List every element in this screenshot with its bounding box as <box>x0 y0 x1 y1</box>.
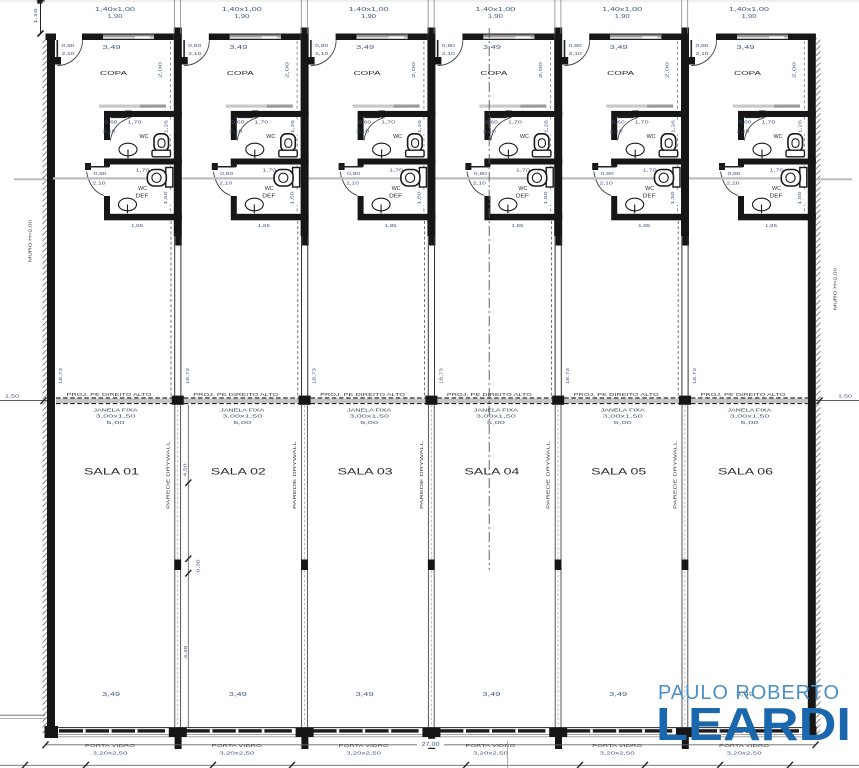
svg-text:SALA 05: SALA 05 <box>591 467 646 477</box>
svg-text:JANELA FIXA: JANELA FIXA <box>220 408 265 413</box>
svg-text:3,49: 3,49 <box>102 692 120 698</box>
svg-text:1,50: 1,50 <box>838 394 852 400</box>
svg-text:2,10: 2,10 <box>610 129 624 134</box>
svg-text:18,73: 18,73 <box>692 367 697 384</box>
svg-text:0,30: 0,30 <box>196 559 201 573</box>
svg-text:1,26: 1,26 <box>290 119 295 133</box>
svg-text:0,60: 0,60 <box>105 119 119 124</box>
svg-text:WC: WC <box>645 186 654 192</box>
svg-text:3,00x1,50: 3,00x1,50 <box>476 414 517 419</box>
svg-text:1,70: 1,70 <box>128 119 143 124</box>
svg-text:1,40x1,00: 1,40x1,00 <box>95 7 135 13</box>
svg-text:1,26: 1,26 <box>163 119 168 133</box>
svg-text:DEF: DEF <box>643 194 656 200</box>
svg-text:0,80: 0,80 <box>474 171 488 176</box>
svg-text:PROJ. PE DIREITO ALTO: PROJ. PE DIREITO ALTO <box>574 392 659 398</box>
svg-text:WC: WC <box>392 186 401 192</box>
svg-text:2,10: 2,10 <box>62 51 75 57</box>
svg-text:1,40x1,00: 1,40x1,00 <box>602 7 642 13</box>
svg-text:SALA 03: SALA 03 <box>338 467 393 477</box>
svg-text:27,00: 27,00 <box>422 742 440 748</box>
svg-text:0,60: 0,60 <box>231 119 245 124</box>
svg-text:WC: WC <box>138 186 147 192</box>
svg-text:0,80: 0,80 <box>188 43 201 49</box>
svg-text:5,00: 5,00 <box>741 420 760 425</box>
svg-text:3,00x1,50: 3,00x1,50 <box>603 414 644 419</box>
svg-text:JANELA FIXA: JANELA FIXA <box>347 408 392 413</box>
svg-text:0,80: 0,80 <box>569 43 582 49</box>
svg-text:3,49: 3,49 <box>483 45 501 51</box>
svg-text:PROJ. PE DIREITO ALTO: PROJ. PE DIREITO ALTO <box>320 392 405 398</box>
svg-text:2,10: 2,10 <box>483 129 497 134</box>
svg-text:1,40x1,00: 1,40x1,00 <box>475 7 515 13</box>
svg-text:2,00: 2,00 <box>158 61 163 78</box>
svg-text:1,10: 1,10 <box>33 8 38 24</box>
svg-text:1,50: 1,50 <box>290 191 295 205</box>
svg-text:COPA: COPA <box>480 71 507 77</box>
svg-text:WC: WC <box>266 134 275 140</box>
svg-text:2,00: 2,00 <box>792 61 797 78</box>
svg-text:COPA: COPA <box>100 71 127 77</box>
svg-text:5,00: 5,00 <box>233 420 252 425</box>
svg-text:DEF: DEF <box>389 194 402 200</box>
svg-text:0,80: 0,80 <box>94 171 108 176</box>
svg-text:1,85: 1,85 <box>638 223 650 229</box>
svg-text:0,80: 0,80 <box>347 171 361 176</box>
svg-text:3,49: 3,49 <box>609 692 627 698</box>
svg-text:5,00: 5,00 <box>107 420 126 425</box>
svg-text:WC: WC <box>393 134 402 140</box>
svg-text:3,20x2,50: 3,20x2,50 <box>93 751 129 756</box>
svg-text:1,40x1,00: 1,40x1,00 <box>349 7 389 13</box>
svg-text:1,70: 1,70 <box>389 167 404 172</box>
svg-text:JANELA FIXA: JANELA FIXA <box>94 408 139 413</box>
svg-text:PAREDE DRYWALL: PAREDE DRYWALL <box>673 440 678 509</box>
svg-text:MURO H=2,00: MURO H=2,00 <box>833 267 838 310</box>
svg-text:0,80: 0,80 <box>442 43 455 49</box>
svg-text:COPA: COPA <box>607 71 634 77</box>
svg-text:3,49: 3,49 <box>356 692 374 698</box>
svg-text:1,40x1,00: 1,40x1,00 <box>222 7 262 13</box>
svg-text:1,50: 1,50 <box>416 191 421 205</box>
svg-text:0,80: 0,80 <box>601 171 615 176</box>
svg-text:1,50: 1,50 <box>163 191 168 205</box>
svg-text:PROJ. PE DIREITO ALTO: PROJ. PE DIREITO ALTO <box>701 392 786 398</box>
svg-text:5,00: 5,00 <box>614 420 633 425</box>
svg-text:2,10: 2,10 <box>219 181 233 186</box>
svg-text:LEARDI: LEARDI <box>656 698 851 750</box>
svg-text:1,70: 1,70 <box>770 167 785 172</box>
svg-text:0,60: 0,60 <box>739 119 753 124</box>
svg-text:1,70: 1,70 <box>762 119 777 124</box>
svg-text:3,49: 3,49 <box>229 692 247 698</box>
svg-text:COPA: COPA <box>734 71 761 77</box>
svg-text:2,00: 2,00 <box>284 61 289 78</box>
svg-text:2,10: 2,10 <box>442 51 455 57</box>
svg-text:PAREDE DRYWALL: PAREDE DRYWALL <box>165 440 170 509</box>
svg-text:2,10: 2,10 <box>346 181 360 186</box>
svg-text:1,26: 1,26 <box>417 119 422 133</box>
svg-text:1,85: 1,85 <box>511 223 523 229</box>
svg-text:3,49: 3,49 <box>103 45 121 51</box>
svg-text:3,49: 3,49 <box>737 45 755 51</box>
svg-text:1,90: 1,90 <box>615 14 630 20</box>
svg-text:1,85: 1,85 <box>131 223 143 229</box>
svg-text:PORTA VIDRO: PORTA VIDRO <box>465 743 515 749</box>
svg-text:4,48: 4,48 <box>183 645 188 659</box>
svg-text:DEF: DEF <box>262 194 275 200</box>
svg-text:0,80: 0,80 <box>315 43 328 49</box>
svg-text:1,50: 1,50 <box>670 191 675 205</box>
svg-text:WC: WC <box>518 186 527 192</box>
svg-text:3,00x1,50: 3,00x1,50 <box>349 414 390 419</box>
svg-text:SALA 04: SALA 04 <box>464 467 519 477</box>
svg-text:3,49: 3,49 <box>356 45 374 51</box>
svg-text:2,10: 2,10 <box>473 181 487 186</box>
svg-text:2,10: 2,10 <box>103 129 117 134</box>
svg-text:WC: WC <box>520 134 529 140</box>
svg-text:DEF: DEF <box>136 194 149 200</box>
svg-text:WC: WC <box>772 186 781 192</box>
svg-text:3,20x2,50: 3,20x2,50 <box>219 751 255 756</box>
svg-text:3,20x2,50: 3,20x2,50 <box>473 751 509 756</box>
svg-text:1,70: 1,70 <box>516 167 531 172</box>
svg-text:1,70: 1,70 <box>508 119 523 124</box>
svg-text:3,00x1,50: 3,00x1,50 <box>96 414 137 419</box>
svg-text:1,50: 1,50 <box>543 191 548 205</box>
svg-text:2,10: 2,10 <box>600 181 614 186</box>
svg-text:0,80: 0,80 <box>728 171 742 176</box>
svg-text:COPA: COPA <box>354 71 381 77</box>
svg-text:1,85: 1,85 <box>385 223 397 229</box>
svg-text:PAREDE DRYWALL: PAREDE DRYWALL <box>546 440 551 509</box>
svg-text:2,10: 2,10 <box>315 51 328 57</box>
svg-text:PROJ. PE DIREITO ALTO: PROJ. PE DIREITO ALTO <box>67 392 152 398</box>
svg-text:1,50: 1,50 <box>797 191 802 205</box>
svg-text:3,49: 3,49 <box>482 692 500 698</box>
svg-text:3,20x2,50: 3,20x2,50 <box>727 751 763 756</box>
svg-text:1,70: 1,70 <box>262 167 277 172</box>
svg-text:1,90: 1,90 <box>742 14 757 20</box>
svg-text:3,00x1,50: 3,00x1,50 <box>730 414 771 419</box>
svg-text:2,00: 2,00 <box>411 61 416 78</box>
svg-text:1,85: 1,85 <box>258 223 270 229</box>
svg-text:0,60: 0,60 <box>358 119 372 124</box>
svg-text:DEF: DEF <box>516 194 529 200</box>
svg-text:3,20x2,50: 3,20x2,50 <box>346 751 382 756</box>
svg-text:2,10: 2,10 <box>727 181 741 186</box>
svg-text:2,10: 2,10 <box>229 129 243 134</box>
svg-text:WC: WC <box>140 134 149 140</box>
svg-text:PORTA VIDRO: PORTA VIDRO <box>212 743 262 749</box>
svg-text:18,73: 18,73 <box>438 367 443 384</box>
svg-text:1,90: 1,90 <box>488 14 503 20</box>
svg-text:1,70: 1,70 <box>136 167 151 172</box>
svg-text:18,73: 18,73 <box>185 367 190 384</box>
svg-text:1,70: 1,70 <box>381 119 396 124</box>
svg-text:18,73: 18,73 <box>565 367 570 384</box>
svg-text:1,90: 1,90 <box>108 14 123 20</box>
svg-text:JANELA FIXA: JANELA FIXA <box>474 408 519 413</box>
svg-text:JANELA FIXA: JANELA FIXA <box>728 408 773 413</box>
svg-text:0,80: 0,80 <box>62 43 75 49</box>
svg-text:1,26: 1,26 <box>671 119 676 133</box>
svg-text:2,10: 2,10 <box>93 181 107 186</box>
svg-text:5,00: 5,00 <box>360 420 379 425</box>
svg-text:PROJ. PE DIREITO ALTO: PROJ. PE DIREITO ALTO <box>193 392 278 398</box>
svg-text:3,49: 3,49 <box>229 45 247 51</box>
svg-text:2,10: 2,10 <box>737 129 751 134</box>
svg-text:18,73: 18,73 <box>58 367 63 384</box>
svg-text:0,80: 0,80 <box>220 171 234 176</box>
svg-text:MURO H=2,00: MURO H=2,00 <box>28 219 33 262</box>
svg-text:SALA 06: SALA 06 <box>718 467 773 477</box>
svg-text:2,10: 2,10 <box>188 51 201 57</box>
svg-text:0,60: 0,60 <box>612 119 626 124</box>
svg-text:1,85: 1,85 <box>765 223 777 229</box>
svg-text:SALA 02: SALA 02 <box>211 467 266 477</box>
svg-text:5,00: 5,00 <box>487 420 506 425</box>
svg-text:3,49: 3,49 <box>610 45 628 51</box>
svg-text:2,10: 2,10 <box>696 51 709 57</box>
svg-text:JANELA FIXA: JANELA FIXA <box>601 408 646 413</box>
svg-text:18,73: 18,73 <box>312 367 317 384</box>
svg-text:1,40x1,00: 1,40x1,00 <box>729 7 769 13</box>
svg-text:1,90: 1,90 <box>361 14 376 20</box>
svg-text:WC: WC <box>774 134 783 140</box>
svg-text:3,00x1,50: 3,00x1,50 <box>222 414 263 419</box>
svg-text:PAREDE DRYWALL: PAREDE DRYWALL <box>292 440 297 509</box>
svg-text:2,10: 2,10 <box>356 129 370 134</box>
svg-text:2,00: 2,00 <box>538 61 543 78</box>
svg-text:PORTA VIDRO: PORTA VIDRO <box>592 743 642 749</box>
svg-text:SALA 01: SALA 01 <box>84 467 139 477</box>
svg-text:1,70: 1,70 <box>635 119 650 124</box>
svg-text:1,90: 1,90 <box>234 14 249 20</box>
svg-text:1,70: 1,70 <box>254 119 269 124</box>
svg-text:1,50: 1,50 <box>5 394 19 400</box>
svg-text:0,60: 0,60 <box>485 119 499 124</box>
svg-text:4,50: 4,50 <box>183 463 188 477</box>
svg-text:2,00: 2,00 <box>665 61 670 78</box>
svg-text:1,26: 1,26 <box>797 119 802 133</box>
svg-text:3,20x2,50: 3,20x2,50 <box>600 751 636 756</box>
svg-text:WC: WC <box>265 186 274 192</box>
svg-text:PORTA VIDRO: PORTA VIDRO <box>339 743 389 749</box>
svg-text:2,10: 2,10 <box>569 51 582 57</box>
svg-text:COPA: COPA <box>227 71 254 77</box>
svg-text:0,80: 0,80 <box>696 43 709 49</box>
svg-text:DEF: DEF <box>770 194 783 200</box>
svg-text:1,26: 1,26 <box>544 119 549 133</box>
svg-text:WC: WC <box>647 134 656 140</box>
svg-text:PAREDE DRYWALL: PAREDE DRYWALL <box>419 440 424 509</box>
svg-text:PORTA VIDRO: PORTA VIDRO <box>85 743 135 749</box>
svg-text:1,70: 1,70 <box>643 167 658 172</box>
